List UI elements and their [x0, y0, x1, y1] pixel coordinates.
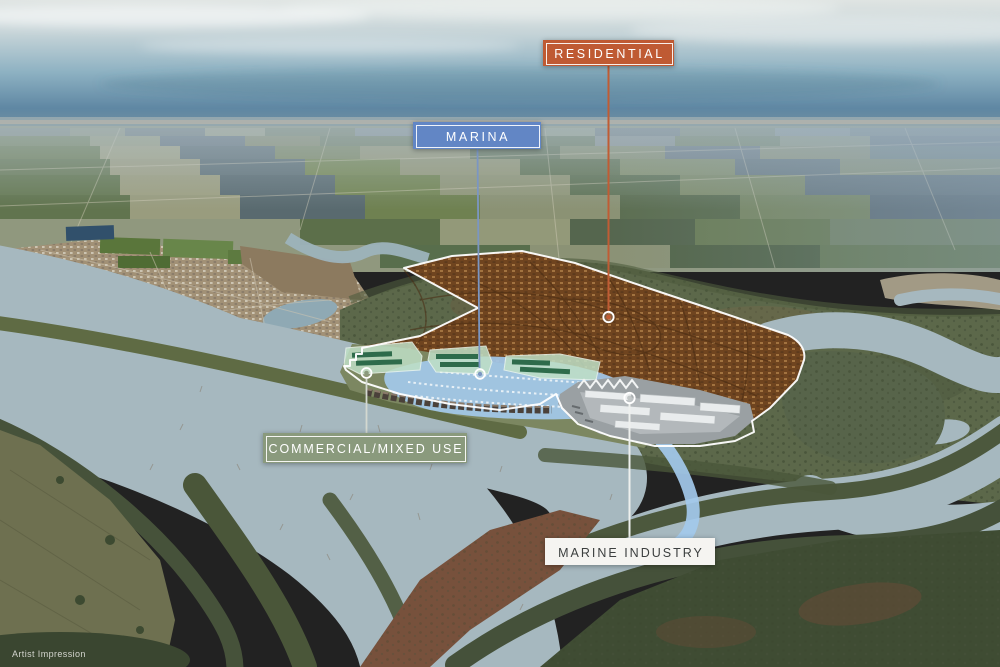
label-commercial-mixed-use: COMMERCIAL/MIXED USE: [263, 433, 467, 463]
label-marine-industry: MARINE INDUSTRY: [545, 538, 715, 565]
label-marine-industry-text: MARINE INDUSTRY: [548, 541, 714, 564]
label-residential-text: RESIDENTIAL: [546, 43, 673, 65]
annotated-aerial-masterplan: RESIDENTIAL MARINA COMMERCIAL/MIXED USE …: [0, 0, 1000, 667]
label-residential: RESIDENTIAL: [543, 40, 674, 66]
artist-impression-note: Artist Impression: [12, 649, 86, 659]
aerial-photo: [0, 0, 1000, 667]
label-commercial-text: COMMERCIAL/MIXED USE: [266, 436, 466, 462]
label-marina: MARINA: [413, 122, 541, 149]
reservoir: [66, 225, 114, 241]
label-marina-text: MARINA: [416, 125, 540, 148]
